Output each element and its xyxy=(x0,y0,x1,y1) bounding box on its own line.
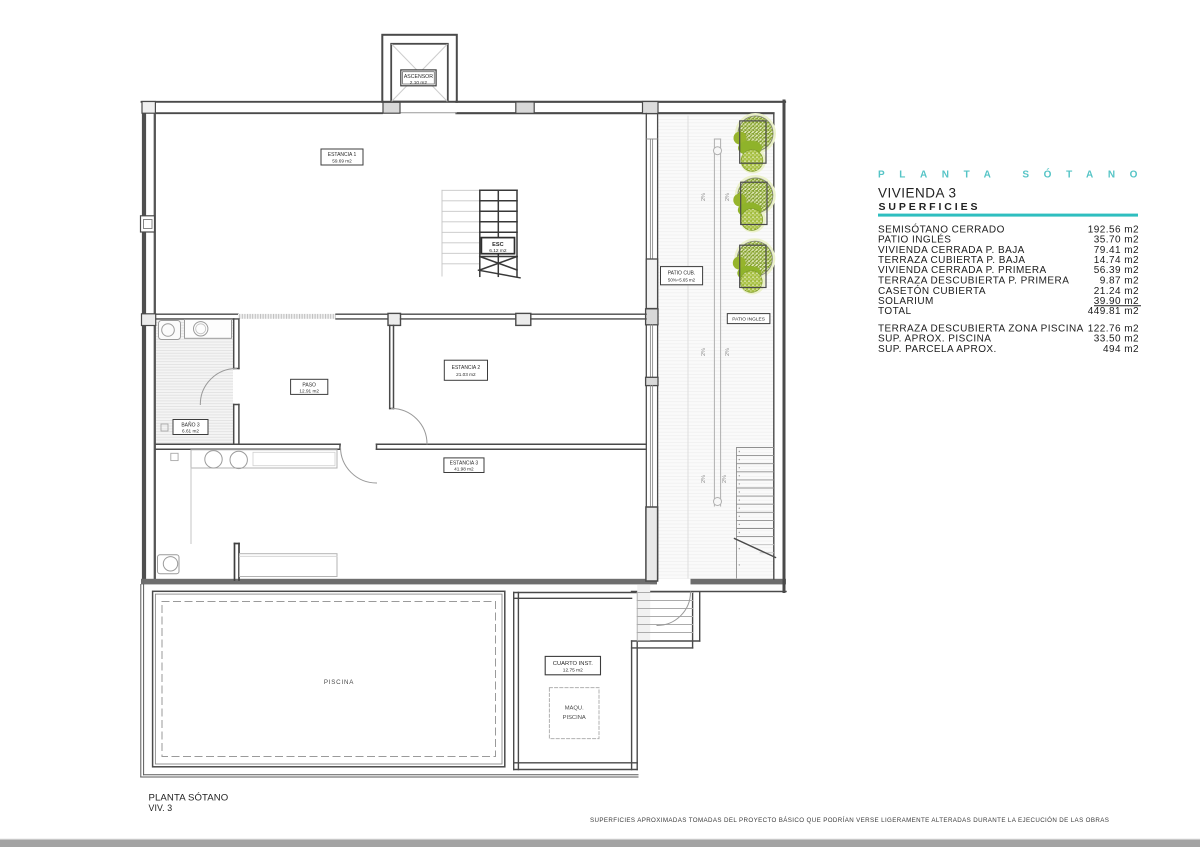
svg-text:41.98 m2: 41.98 m2 xyxy=(454,467,474,472)
svg-text:35.70 m2: 35.70 m2 xyxy=(1094,235,1139,246)
svg-text:SEMISÓTANO CERRADO: SEMISÓTANO CERRADO xyxy=(878,222,1005,235)
svg-text:2%: 2% xyxy=(725,193,731,201)
svg-text:12.75 m2: 12.75 m2 xyxy=(563,668,583,674)
svg-text:6.61 m2: 6.61 m2 xyxy=(182,429,199,434)
svg-text:2%: 2% xyxy=(725,348,731,356)
svg-text:494 m2: 494 m2 xyxy=(1103,344,1139,355)
svg-text:ASCENSOR: ASCENSOR xyxy=(404,74,433,80)
svg-text:PLANTA SÓTANO: PLANTA SÓTANO xyxy=(149,793,229,804)
svg-text:PATIO INGLES: PATIO INGLES xyxy=(732,317,765,323)
svg-text:PISCINA: PISCINA xyxy=(563,715,586,721)
svg-text:PASO: PASO xyxy=(302,382,316,388)
svg-text:2%: 2% xyxy=(701,475,707,483)
svg-text:SUP. PARCELA APROX.: SUP. PARCELA APROX. xyxy=(878,344,997,355)
svg-text:6.12 m2: 6.12 m2 xyxy=(489,248,507,254)
svg-text:VIVIENDA 3: VIVIENDA 3 xyxy=(878,185,957,200)
svg-text:TOTAL: TOTAL xyxy=(878,306,912,317)
svg-text:12.91 m2: 12.91 m2 xyxy=(299,389,319,394)
svg-text:PISCINA: PISCINA xyxy=(324,679,354,686)
svg-text:MAQU.: MAQU. xyxy=(565,706,584,712)
svg-text:2%: 2% xyxy=(722,475,728,483)
svg-text:CUARTO INST.: CUARTO INST. xyxy=(553,661,593,667)
svg-text:449.81 m2: 449.81 m2 xyxy=(1088,306,1139,317)
svg-text:ESTANCIA 1: ESTANCIA 1 xyxy=(328,152,357,158)
svg-text:59.69 m2: 59.69 m2 xyxy=(332,159,352,164)
svg-text:ESTANCIA 2: ESTANCIA 2 xyxy=(452,365,481,371)
svg-text:TERRAZA DESCUBIERTA P. PRIMERA: TERRAZA DESCUBIERTA P. PRIMERA xyxy=(878,275,1069,286)
svg-text:SUPERFICIES APROXIMADAS TOMADA: SUPERFICIES APROXIMADAS TOMADAS DEL PROY… xyxy=(590,817,1109,824)
svg-text:2%: 2% xyxy=(701,348,707,356)
svg-text:2.10 m2: 2.10 m2 xyxy=(410,80,428,86)
svg-text:2%: 2% xyxy=(701,193,707,201)
svg-text:SUPERFICIES: SUPERFICIES xyxy=(879,201,981,213)
svg-text:CASETÓN CUBIERTA: CASETÓN CUBIERTA xyxy=(878,284,986,297)
svg-text:9.87 m2: 9.87 m2 xyxy=(1100,275,1139,286)
svg-text:50%=5.65 m2: 50%=5.65 m2 xyxy=(668,277,696,282)
svg-text:BAÑO 3: BAÑO 3 xyxy=(181,421,200,428)
svg-text:PATIO INGLÉS: PATIO INGLÉS xyxy=(878,233,951,246)
svg-text:PATIO CUB.: PATIO CUB. xyxy=(668,271,696,277)
svg-text:PLANTA SÓTANO: PLANTA SÓTANO xyxy=(878,168,1152,181)
svg-text:VIV. 3: VIV. 3 xyxy=(149,803,173,813)
svg-text:ESC: ESC xyxy=(492,242,504,248)
svg-text:ESTANCIA 3: ESTANCIA 3 xyxy=(450,461,479,467)
svg-text:21.03 m2: 21.03 m2 xyxy=(456,372,476,377)
